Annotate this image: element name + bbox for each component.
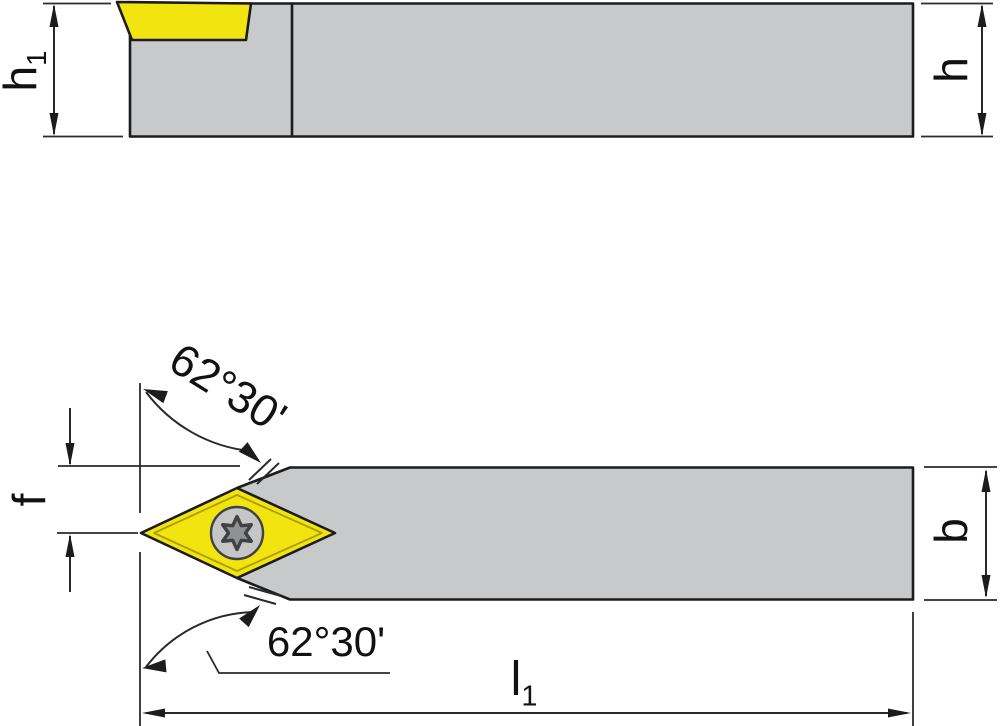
angle-top-arrow-end [239,442,261,463]
b-arrow-up [982,469,991,492]
dim-label-h1-sub: 1 [21,51,52,66]
shank-plan-body [237,468,913,600]
f-arrow-up [66,534,75,557]
l1-arrow-left [142,709,165,718]
angle-label-bottom-text: 62°30' [267,618,385,665]
angle-bottom-arrow-end [239,605,260,627]
b-arrow-down [982,575,991,598]
dim-label-f: f [6,494,52,507]
dim-label-l1-sub: 1 [521,681,537,713]
dim-label-f-main: f [3,494,55,507]
h-arrow-down [978,113,987,136]
dim-label-h1: h1 [0,51,43,92]
angle-label-bottom: 62°30' [267,621,385,663]
dim-label-l1: l1 [511,656,538,704]
dim-label-l1-main: l [511,653,522,706]
toolholder-technical-drawing: h1 h f b l1 62°30' 62°30' [0,0,1000,726]
angle-arc-bottom [146,612,253,667]
dim-label-h1-main: h [0,66,46,92]
insert-side-profile [117,2,251,40]
h1-arrow-down [50,113,59,136]
side-view-group [43,2,993,137]
h-arrow-up [978,4,987,27]
dim-label-b-main: b [925,518,977,544]
angle-top-arrow-start [143,389,168,403]
dim-label-h: h [928,57,974,83]
dim-label-b: b [928,518,974,544]
dim-label-h-main: h [925,57,977,83]
f-arrow-down [66,443,75,466]
drawing-canvas [0,0,1000,726]
l1-arrow-right [888,709,911,718]
edge-mark-bottom-1 [244,595,276,604]
h1-arrow-up [50,4,59,27]
